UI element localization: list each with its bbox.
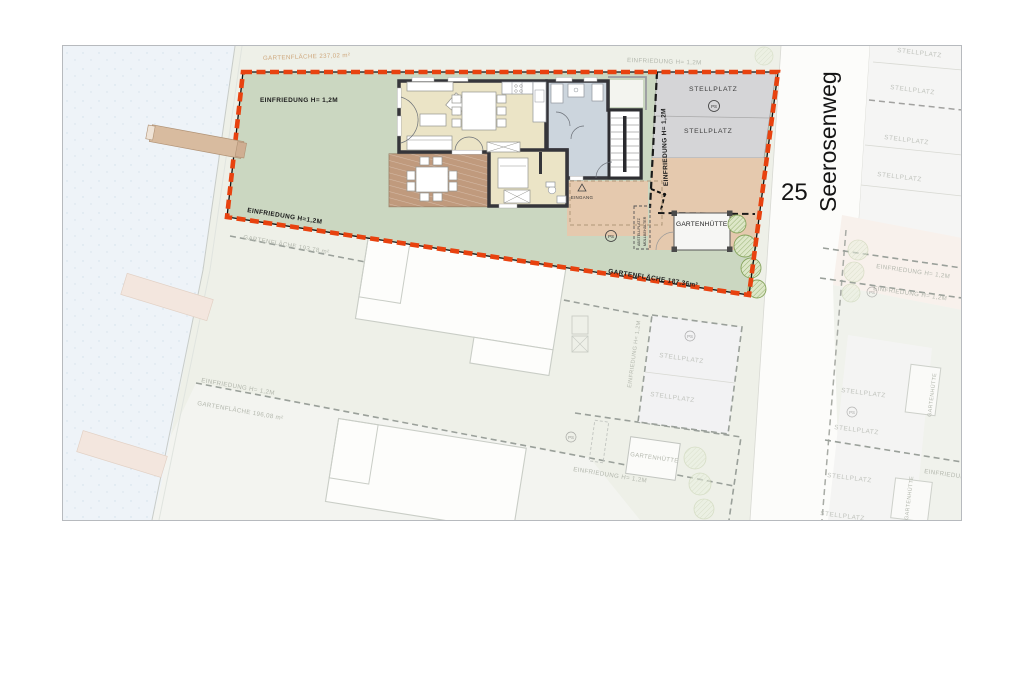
coffee-table (420, 114, 446, 126)
ps-symbol-faint: PS (687, 334, 693, 339)
parking-area: STELLPLATZ STELLPLATZ PS (652, 72, 776, 158)
house-number-label: 25 (781, 179, 808, 206)
entrance-door-opening (570, 176, 583, 180)
street-name-label: Seerosenweg (815, 71, 841, 212)
dining-table (462, 92, 496, 130)
terrace (389, 154, 489, 207)
parking-label: STELLPLATZ (684, 128, 732, 135)
parking-label: STELLPLATZ (689, 86, 737, 93)
shed-label: GARTENHÜTTE (676, 220, 728, 228)
sideboard (407, 82, 453, 91)
sofa (407, 136, 452, 150)
bin-storage-label-2: MÜLLBEHÄLTER (643, 216, 647, 246)
basin (557, 196, 566, 203)
bush-faint (755, 47, 773, 65)
bed (498, 158, 528, 188)
bin-storage-label-1: ABSTELLPLATZ (637, 217, 641, 246)
ps-symbol-faint: PS (568, 435, 574, 440)
ps-symbol: PS (711, 104, 717, 109)
terrace-table (416, 167, 448, 192)
entrance-label: EINGANG (571, 195, 594, 200)
staircase (609, 110, 641, 178)
site-plan-sheet: STELLPLATZ STELLPLATZ STELLPLATZ STELLPL… (0, 0, 1024, 683)
ps-symbol-faint: PS (869, 290, 875, 295)
ps-symbol-faint: PS (849, 410, 855, 415)
ps-symbol-label: PS (608, 234, 614, 239)
fence-label-top: EINFRIEDUNG H= 1,2M (260, 97, 338, 104)
site-plan-drawing: STELLPLATZ STELLPLATZ STELLPLATZ STELLPL… (0, 0, 1024, 683)
